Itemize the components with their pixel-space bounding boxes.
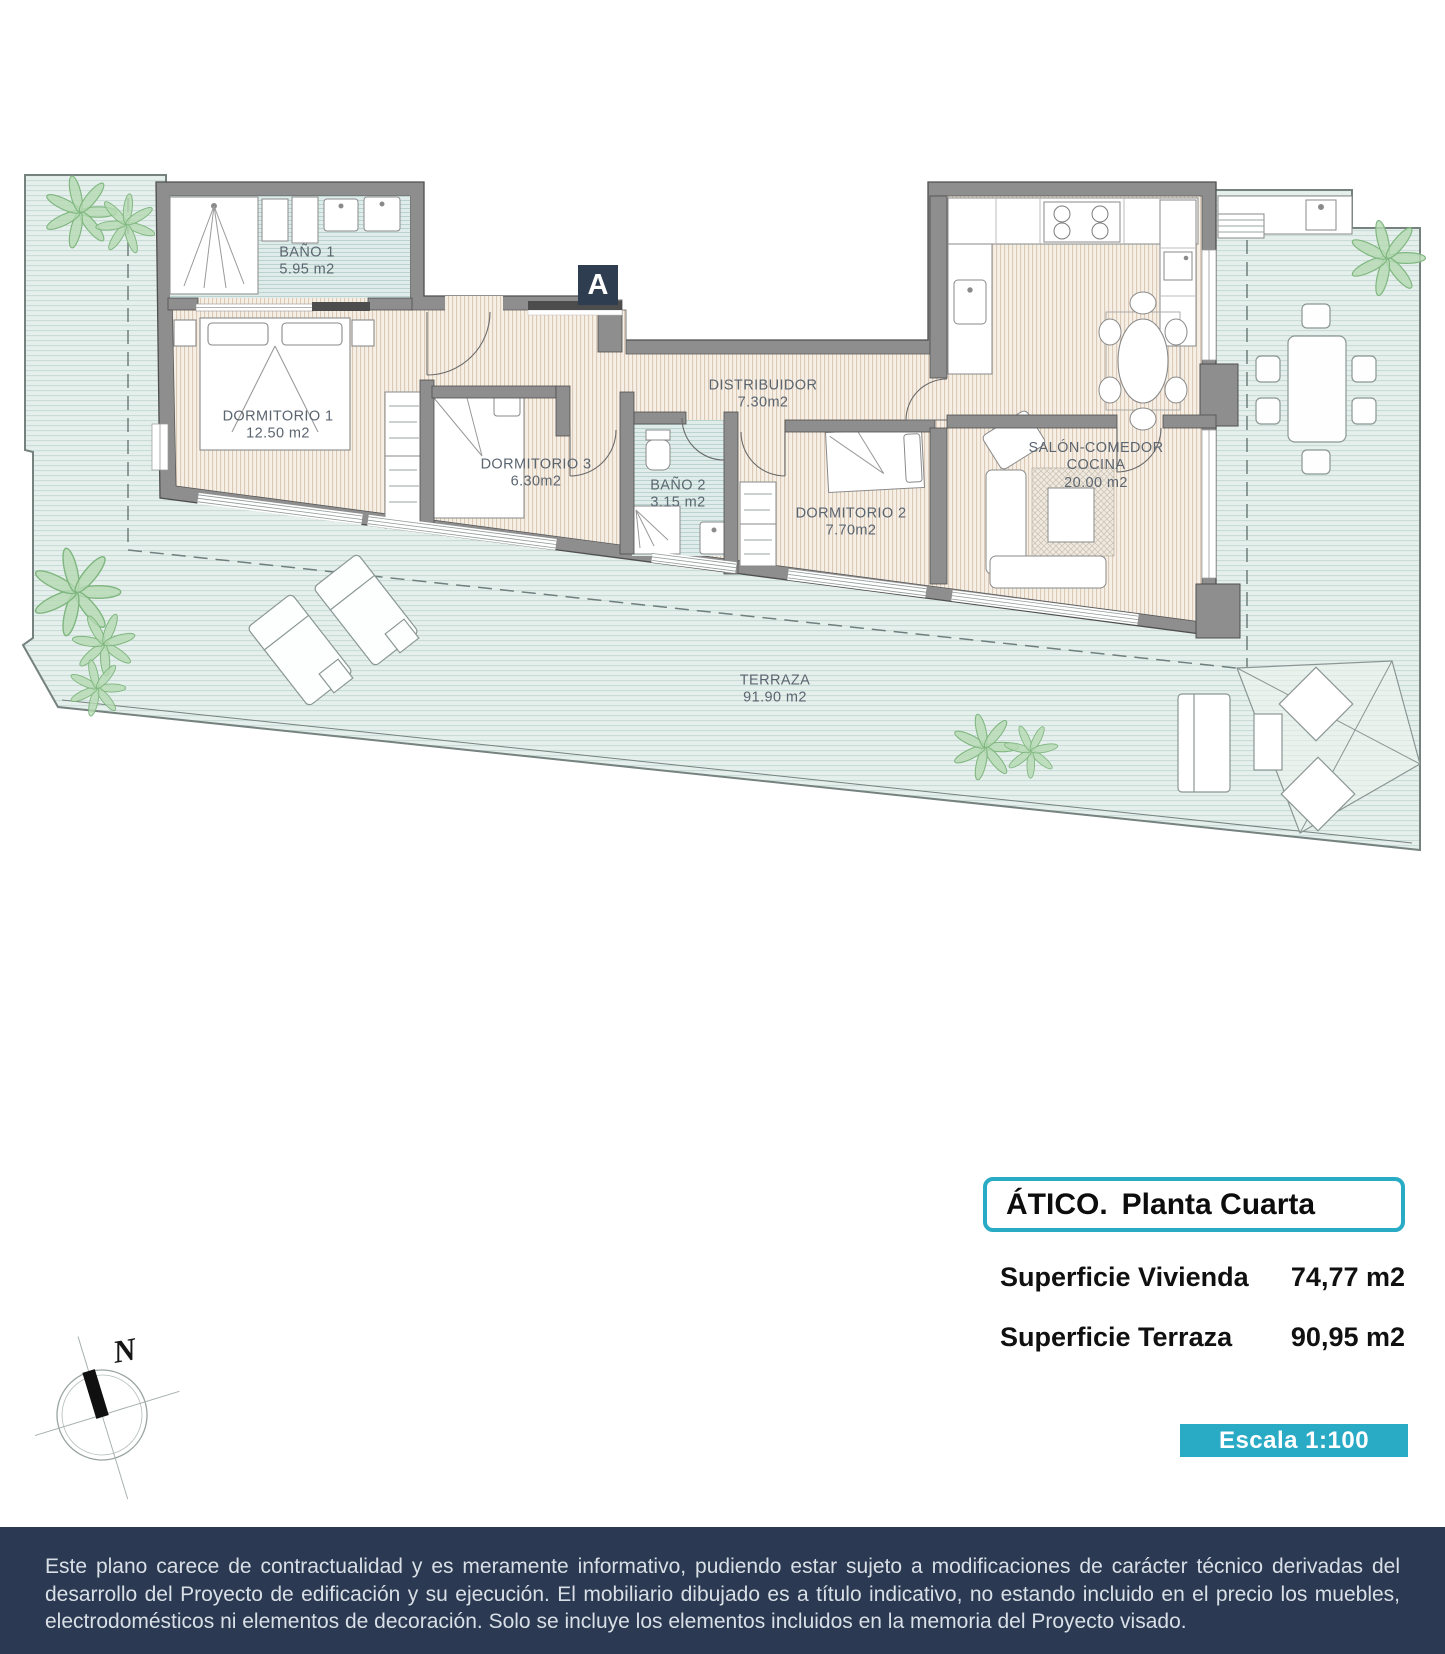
surface-label: Superficie Vivienda <box>1000 1262 1249 1293</box>
section-marker-a: A <box>578 265 618 305</box>
room-label-salon: SALÓN-COMEDORCOCINA20.00 m2 <box>1029 440 1164 492</box>
terrace-sofa <box>1178 694 1230 792</box>
room-label-bano1: BAÑO 15.95 m2 <box>279 245 335 280</box>
surface-value: 74,77 m2 <box>1291 1262 1405 1293</box>
surface-row-terraza: Superficie Terraza 90,95 m2 <box>1000 1322 1405 1353</box>
room-label-terraza: TERRAZA91.90 m2 <box>740 673 810 708</box>
surface-value: 90,95 m2 <box>1291 1322 1405 1353</box>
north-compass-icon: N <box>35 1325 185 1510</box>
room-label-bano2: BAÑO 23.15 m2 <box>650 478 706 513</box>
room-label-dormitorio2: DORMITORIO 27.70m2 <box>796 506 907 541</box>
surface-row-vivienda: Superficie Vivienda 74,77 m2 <box>1000 1262 1405 1293</box>
surface-label: Superficie Terraza <box>1000 1322 1232 1353</box>
plan-title-box: ÁTICO. Planta Cuarta <box>983 1177 1405 1232</box>
plan-title-name: Planta Cuarta <box>1122 1188 1315 1222</box>
footer-disclaimer-band: Este plano carece de contractualidad y e… <box>0 1527 1445 1654</box>
disclaimer-text: Este plano carece de contractualidad y e… <box>45 1553 1400 1636</box>
door-opening <box>445 296 503 311</box>
scale-bar: Escala 1:100 <box>1180 1424 1408 1457</box>
room-label-dormitorio1: DORMITORIO 112.50 m2 <box>223 409 334 444</box>
svg-text:N: N <box>109 1330 141 1370</box>
floor-plan-page: BAÑO 15.95 m2 DORMITORIO 112.50 m2 DORMI… <box>0 0 1445 1654</box>
floor-plan-drawing <box>0 0 1445 880</box>
room-label-dormitorio3: DORMITORIO 36.30m2 <box>481 457 592 492</box>
plan-title-prefix: ÁTICO. <box>1006 1188 1108 1222</box>
room-label-distribuidor: DISTRIBUIDOR7.30m2 <box>709 378 818 413</box>
outdoor-kitchen <box>1218 196 1352 238</box>
